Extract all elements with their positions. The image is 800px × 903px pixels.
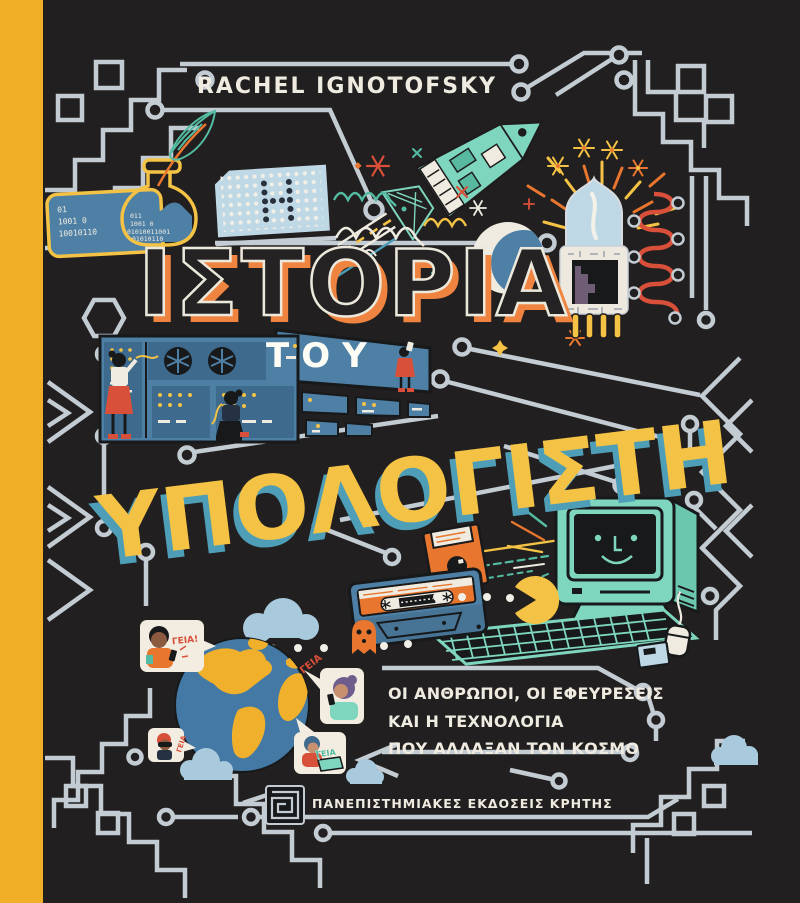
title-istoria: ΙΣΤΟΡΙΑ [138, 238, 550, 330]
firework-asterisks [548, 140, 647, 176]
ghost-icon [352, 620, 376, 654]
svg-text:011: 011 [130, 212, 142, 220]
author-name: RACHEL IGNOTOFSKY [167, 74, 527, 99]
cloud-icon [243, 598, 319, 643]
publisher-name: ΠΑΝΕΠΙΣΤΗΜΙΑΚΕΣ ΕΚΔΟΣΕΙΣ ΚΡΗΤΗΣ [312, 796, 613, 811]
pacman-icon [515, 576, 559, 624]
subtitle-line-2: ΚΑΙ Η ΤΕΧΝΟΛΟΓΙΑ [388, 708, 664, 736]
svg-text:01: 01 [57, 205, 67, 215]
subtitle-line-3: ΠΟΥ ΑΛΛΑΞΑΝ ΤΟΝ ΚΟΣΜΟ [388, 735, 664, 763]
svg-text:1001 0: 1001 0 [58, 216, 88, 227]
small-floppy-icon [637, 642, 670, 668]
book-cover: 01 1001 0 10010110 011 1001 0 0101001100… [0, 0, 800, 903]
speech-card-4 [294, 718, 346, 774]
title-tou: ΤΟΥ [266, 336, 379, 376]
ink-bottle: 011 1001 0 01010011001 01010110 [122, 111, 215, 245]
quill-feather-icon [170, 111, 215, 160]
publisher-logo-icon [266, 786, 304, 824]
vacuum-tube-icon [560, 178, 628, 338]
coil-wire-icon [629, 194, 684, 324]
subtitle: ΟΙ ΑΝΘΡΩΠΟΙ, ΟΙ ΕΦΕΥΡΕΣΕΙΣ ΚΑΙ Η ΤΕΧΝΟΛΟ… [388, 680, 664, 763]
svg-text:1001 0: 1001 0 [130, 220, 154, 228]
punch-card [214, 165, 330, 238]
speech-card-2 [304, 668, 364, 724]
subtitle-line-1: ΟΙ ΑΝΘΡΩΠΟΙ, ΟΙ ΕΦΕΥΡΕΣΕΙΣ [388, 680, 664, 708]
